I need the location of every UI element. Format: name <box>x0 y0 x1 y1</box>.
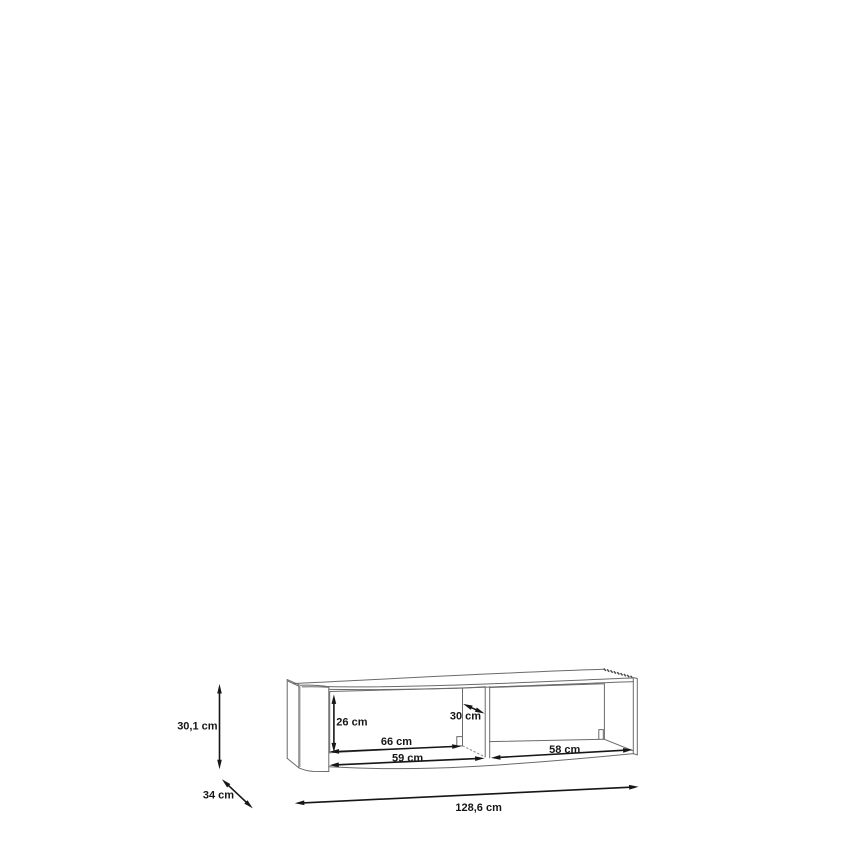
svg-text:30 cm: 30 cm <box>450 711 481 723</box>
svg-text:58 cm: 58 cm <box>549 744 580 756</box>
svg-text:66 cm: 66 cm <box>381 736 412 748</box>
svg-text:59 cm: 59 cm <box>392 752 423 764</box>
svg-text:30,1 cm: 30,1 cm <box>177 721 218 733</box>
svg-text:34 cm: 34 cm <box>203 790 234 802</box>
svg-text:26 cm: 26 cm <box>336 717 367 729</box>
svg-text:128,6 cm: 128,6 cm <box>455 802 502 814</box>
